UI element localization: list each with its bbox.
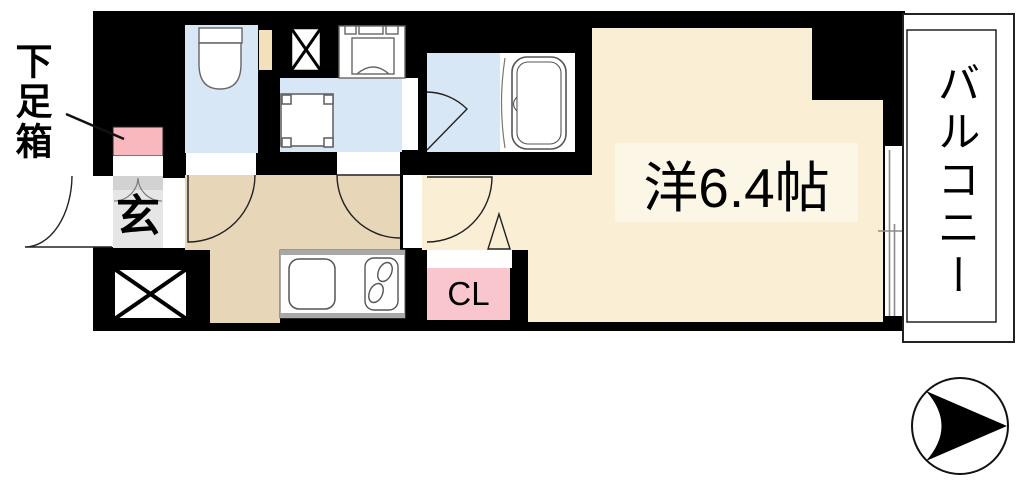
floor-plan: 下足箱 玄 CL 洋6.4帖 バルコニー: [0, 0, 1022, 485]
bath-door-opening: [402, 78, 418, 150]
kitchen-sink-icon: [289, 259, 335, 309]
compass-north-icon: [912, 378, 1008, 474]
stove-icon: [365, 258, 398, 310]
shoe-box-opening: [113, 156, 163, 176]
toilet-door-opening: [186, 153, 256, 175]
washbasin-icon: [339, 26, 405, 78]
entrance-label: 玄: [113, 176, 163, 248]
washer-pan-x-icon: [291, 28, 321, 71]
kitchen-corridor-floor: [210, 250, 280, 323]
closet-label: CL: [427, 268, 510, 320]
washroom-door-opening: [337, 152, 400, 175]
bathroom-floor: [427, 53, 500, 152]
entrance-hall-opening: [163, 178, 185, 248]
shaft-x-icon: [113, 268, 188, 320]
shoe-box: [113, 127, 163, 156]
shoe-box-label: 下足箱: [12, 42, 49, 162]
hallway-floor: [185, 175, 400, 250]
toilet-icon: [199, 28, 242, 89]
front-door-opening: [93, 176, 113, 247]
pipe-space: [259, 30, 272, 70]
balcony-label: バルコニー: [933, 50, 976, 312]
kitchen-counter-icon: [280, 250, 405, 318]
closet-door-opening: [427, 250, 512, 268]
main-room-label: 洋6.4帖: [615, 143, 858, 222]
main-room-door-opening: [403, 175, 422, 248]
washing-machine-icon: [281, 94, 333, 147]
